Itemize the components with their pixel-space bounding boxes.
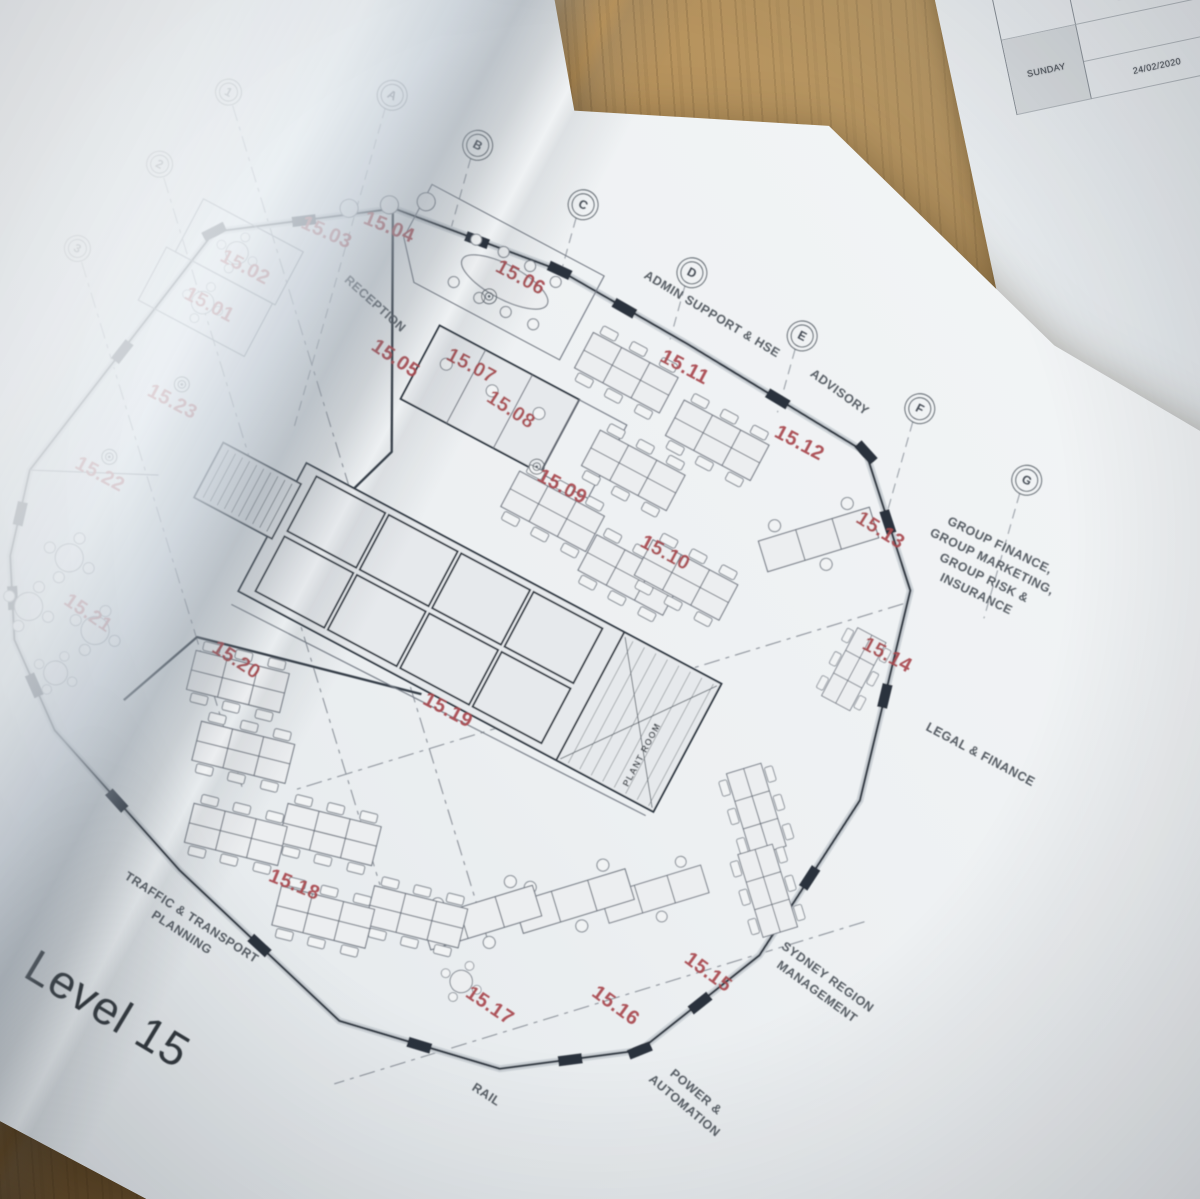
grid-letter: G — [1019, 472, 1034, 489]
label-advisory: ADVISORY — [808, 366, 872, 418]
room-label-15-05: 15.05 — [367, 335, 423, 383]
grid-letter: E — [795, 328, 809, 344]
grid-letter: F — [913, 401, 926, 417]
room-label-15-16: 15.16 — [588, 981, 644, 1030]
grid-letter: C — [576, 197, 591, 214]
grid-bubble-e: E — [782, 316, 823, 357]
grid-bubble-1: 1 — [211, 75, 246, 110]
page-title: Level 15 — [17, 940, 200, 1078]
label-sydney-region: SYDNEY REGION MANAGEMENT — [768, 939, 876, 1030]
room-label-15-15: 15.15 — [680, 948, 736, 997]
label-group-finance-block: GROUP FINANCE, GROUP MARKETING, GROUP RI… — [912, 509, 1064, 630]
label-rail: RAIL — [470, 1080, 504, 1109]
grid-bubble-a: A — [372, 75, 413, 116]
core-block: PLANT ROOM — [165, 262, 808, 812]
floor-plan-drawing: A B C D E — [0, 0, 1200, 1199]
grid-bubble-b: B — [457, 125, 498, 166]
room-label-15-23: 15.23 — [144, 380, 201, 424]
room-label-15-17: 15.17 — [462, 982, 518, 1030]
grid-bubble-3: 3 — [60, 231, 95, 266]
grid-number: 1 — [222, 84, 235, 100]
plan-sheet: A B C D E — [0, 0, 1200, 1199]
grid-bubble-f: F — [900, 388, 941, 429]
label-legal-finance: LEGAL & FINANCE — [924, 720, 1038, 789]
desk-photo: 21/01/2020 SATURDAY 21/01/2020 21/01/202… — [0, 0, 1200, 1199]
label-admin-support-hse: ADMIN SUPPORT & HSE — [642, 268, 783, 360]
plan-sheet-wrap: A B C D E — [0, 0, 1200, 1199]
grid-number: 3 — [71, 241, 84, 257]
grid-letter: A — [385, 87, 400, 104]
grid-bubble-2: 2 — [142, 147, 177, 182]
grid-letter: B — [471, 137, 486, 154]
label-reception: RECEPTION — [342, 273, 409, 335]
grid-number: 2 — [153, 156, 166, 172]
room-label-15-22: 15.22 — [71, 452, 128, 496]
grid-bubble-g: G — [1006, 460, 1047, 501]
grid-letter: D — [685, 265, 700, 282]
label-power-automation: POWER & AUTOMATION — [646, 1058, 734, 1139]
grid-bubble-c: C — [563, 184, 604, 225]
